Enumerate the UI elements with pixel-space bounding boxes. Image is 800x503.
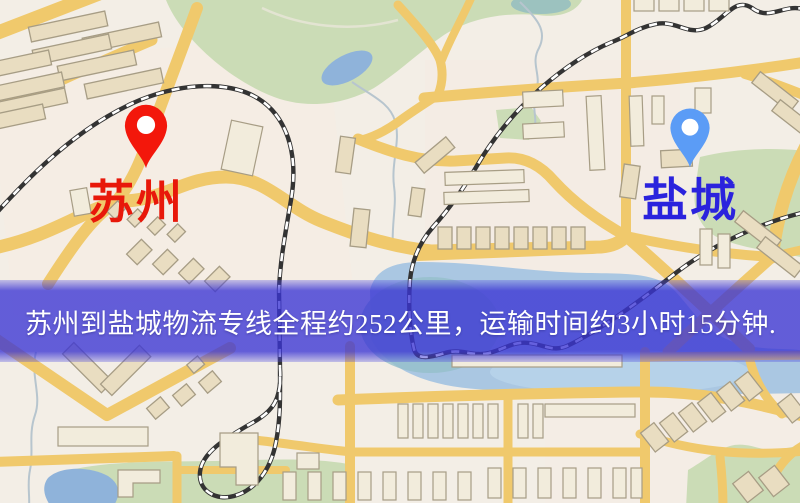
origin-pin-icon[interactable] [119, 100, 173, 171]
map-viewport[interactable]: 苏州 盐城 苏州到盐城物流专线全程约252公里，运输时间约3小时15分钟. [0, 0, 800, 503]
route-info-text: 苏州到盐城物流专线全程约252公里，运输时间约3小时15分钟. [0, 302, 776, 341]
destination-pin-icon[interactable] [665, 104, 715, 170]
destination-city-label: 盐城 [642, 178, 738, 224]
map-canvas [0, 0, 800, 503]
origin-city-label: 苏州 [88, 180, 184, 226]
pin-hole [137, 116, 155, 134]
pin-hole [682, 119, 699, 136]
route-info-banner: 苏州到盐城物流专线全程约252公里，运输时间约3小时15分钟. [0, 280, 800, 362]
